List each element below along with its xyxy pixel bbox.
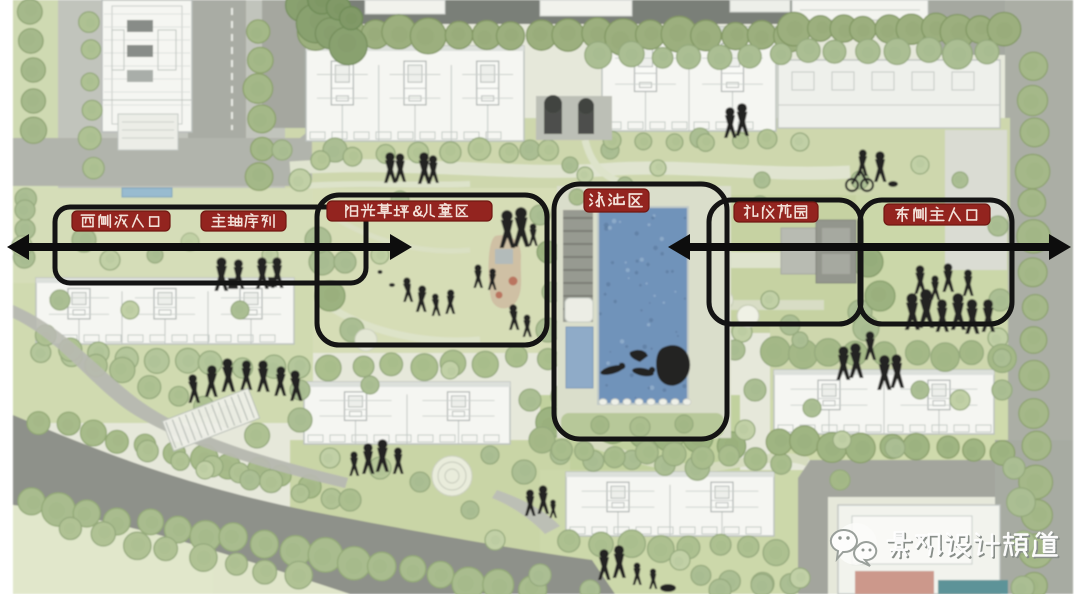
svg-text:&: & xyxy=(412,203,423,220)
